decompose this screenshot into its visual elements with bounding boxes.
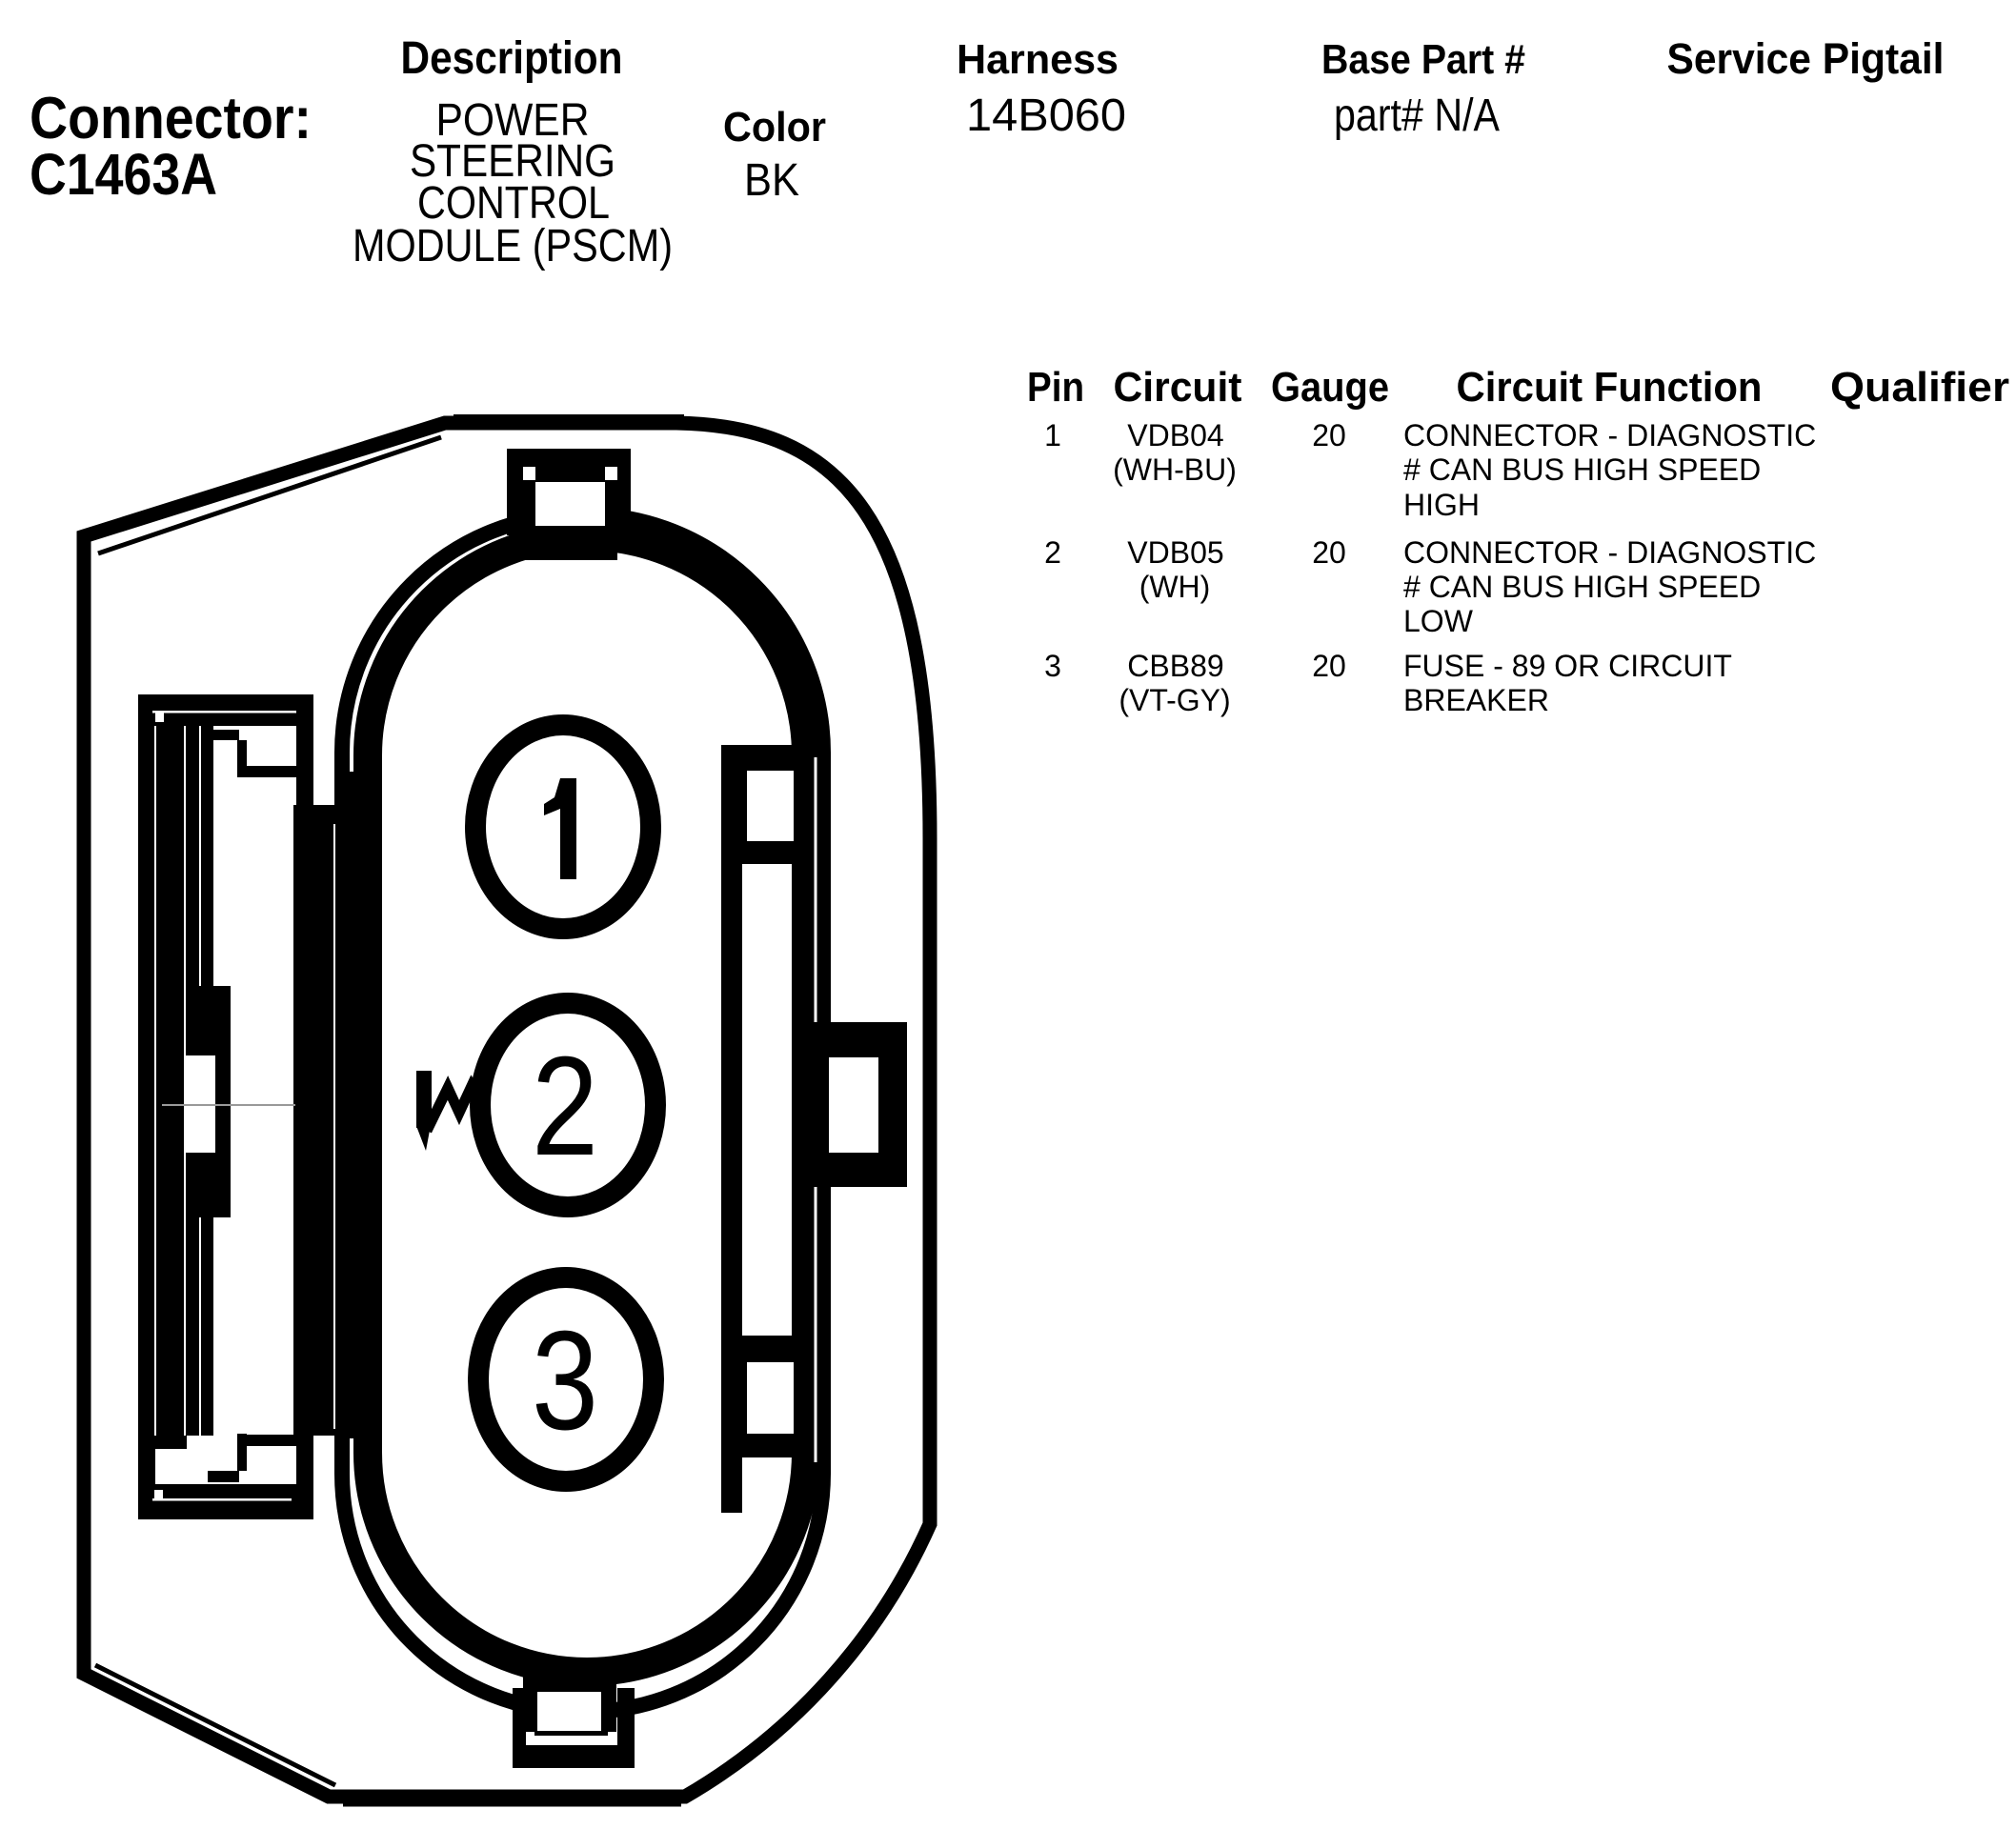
svg-text:LOW: LOW (1403, 604, 1474, 638)
svg-text:2: 2 (1044, 535, 1061, 570)
svg-text:Pin: Pin (1027, 364, 1084, 411)
svg-text:Color: Color (723, 104, 826, 151)
svg-text:part# N/A: part# N/A (1334, 90, 1500, 141)
svg-text:CBB89: CBB89 (1127, 649, 1223, 683)
svg-text:CONNECTOR - DIAGNOSTIC: CONNECTOR - DIAGNOSTIC (1403, 535, 1816, 570)
svg-text:Gauge: Gauge (1271, 364, 1389, 411)
svg-text:C1463A: C1463A (30, 142, 217, 207)
svg-text:Qualifier: Qualifier (1830, 364, 2009, 411)
svg-text:(WH): (WH) (1139, 570, 1211, 604)
svg-text:20: 20 (1312, 418, 1346, 452)
svg-text:Circuit Function: Circuit Function (1457, 364, 1763, 411)
svg-text:20: 20 (1312, 649, 1346, 683)
svg-text:# CAN BUS HIGH SPEED: # CAN BUS HIGH SPEED (1403, 570, 1761, 604)
svg-text:14B060: 14B060 (966, 90, 1126, 141)
svg-text:3: 3 (1044, 649, 1061, 683)
svg-text:3: 3 (532, 1302, 598, 1459)
svg-text:VDB04: VDB04 (1127, 418, 1223, 452)
svg-text:FUSE - 89 OR CIRCUIT: FUSE - 89 OR CIRCUIT (1403, 649, 1732, 683)
svg-text:20: 20 (1312, 535, 1346, 570)
svg-text:HIGH: HIGH (1403, 488, 1480, 522)
svg-text:Base Part #: Base Part # (1321, 36, 1525, 83)
svg-text:1: 1 (1044, 418, 1061, 452)
svg-text:Description: Description (401, 33, 623, 84)
svg-text:BK: BK (744, 155, 799, 206)
svg-text:BREAKER: BREAKER (1403, 683, 1549, 717)
svg-text:Service Pigtail: Service Pigtail (1667, 34, 1945, 83)
svg-text:# CAN BUS HIGH SPEED: # CAN BUS HIGH SPEED (1403, 452, 1761, 487)
svg-text:VDB05: VDB05 (1127, 535, 1223, 570)
svg-text:Circuit: Circuit (1114, 364, 1242, 411)
svg-text:2: 2 (532, 1028, 598, 1185)
svg-text:CONNECTOR - DIAGNOSTIC: CONNECTOR - DIAGNOSTIC (1403, 418, 1816, 452)
svg-text:Harness: Harness (957, 36, 1119, 83)
svg-text:(WH-BU): (WH-BU) (1113, 452, 1237, 487)
svg-text:MODULE (PSCM): MODULE (PSCM) (353, 221, 673, 271)
svg-text:(VT-GY): (VT-GY) (1119, 683, 1230, 717)
